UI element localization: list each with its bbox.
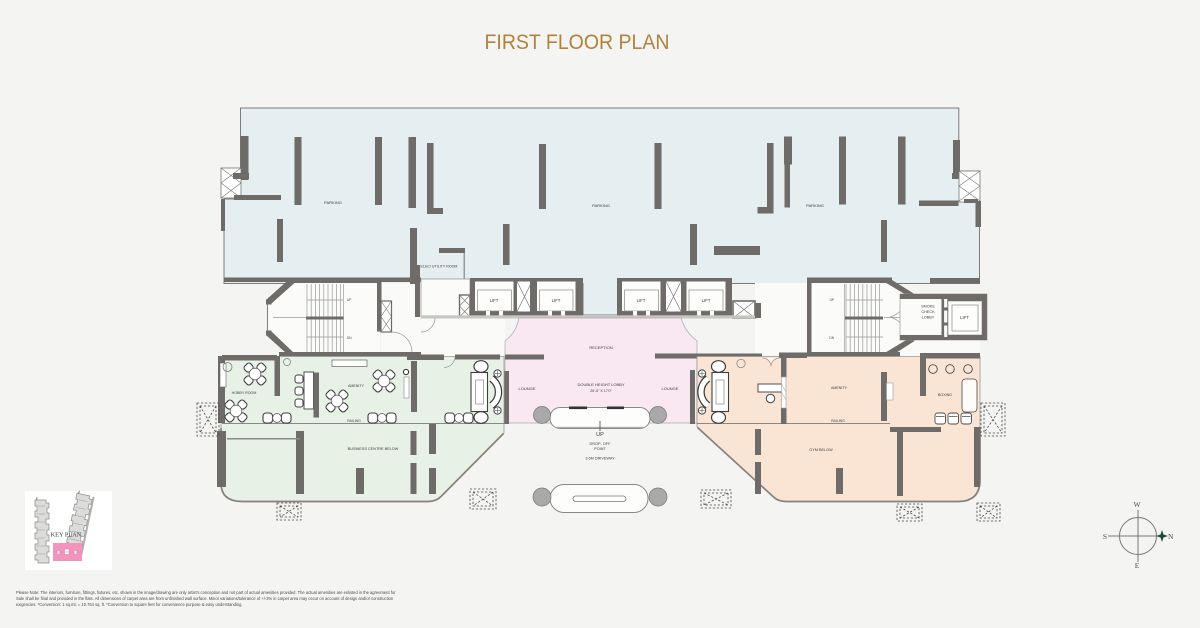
svg-text:PARKING: PARKING: [806, 203, 824, 208]
svg-text:BUSINESS CENTRE BELOW: BUSINESS CENTRE BELOW: [348, 447, 399, 451]
svg-text:DROP- OFF: DROP- OFF: [590, 442, 612, 446]
svg-text:KEY PLAN: KEY PLAN: [51, 532, 82, 539]
svg-text:POINT: POINT: [594, 447, 606, 451]
svg-text:3.6M DRIVEWAY: 3.6M DRIVEWAY: [585, 457, 615, 461]
svg-text:RAILING: RAILING: [831, 419, 845, 423]
svg-text:UP: UP: [347, 298, 351, 302]
svg-text:DOUBLE HEIGHT LOBBY: DOUBLE HEIGHT LOBBY: [577, 382, 624, 387]
svg-text:Please Note: The interiors, fu: Please Note: The interiors, furniture, f…: [16, 590, 396, 595]
svg-text:exigencies. *Conversion: 1 sq.: exigencies. *Conversion: 1 sq.mt. = 10.7…: [16, 602, 243, 607]
svg-text:ELEC/ UTILITY ROOM: ELEC/ UTILITY ROOM: [421, 265, 458, 269]
svg-text:GYM BELOW: GYM BELOW: [809, 448, 833, 452]
svg-text:DN: DN: [829, 336, 834, 340]
svg-text:N: N: [1168, 532, 1174, 541]
svg-text:E: E: [1135, 561, 1140, 570]
svg-text:BOXING: BOXING: [938, 393, 952, 397]
svg-text:AMENITY: AMENITY: [831, 386, 848, 390]
svg-text:DN: DN: [347, 336, 352, 340]
svg-text:LOUNGE: LOUNGE: [662, 386, 679, 391]
svg-text:LIFT: LIFT: [960, 315, 969, 320]
svg-text:LIFT: LIFT: [637, 298, 646, 303]
svg-text:Sale shall be final and provid: Sale shall be final and provided in the …: [16, 596, 394, 601]
svg-text:LOBBY: LOBBY: [922, 316, 935, 320]
svg-text:RECEPTION: RECEPTION: [589, 345, 612, 350]
svg-text:UP: UP: [596, 432, 604, 438]
svg-text:LIFT: LIFT: [702, 298, 711, 303]
svg-text:PARKING: PARKING: [324, 200, 342, 205]
svg-text:LIFT: LIFT: [490, 298, 499, 303]
svg-text:W: W: [1133, 500, 1141, 509]
svg-text:LOUNGE: LOUNGE: [519, 386, 536, 391]
svg-text:LIFT: LIFT: [552, 298, 561, 303]
svg-text:AMENITY: AMENITY: [348, 384, 365, 388]
svg-text:RAILING: RAILING: [347, 419, 361, 423]
svg-text:26'-6" X 17'0": 26'-6" X 17'0": [590, 389, 612, 393]
svg-text:S: S: [1103, 532, 1107, 541]
svg-text:UP: UP: [830, 298, 834, 302]
svg-text:SMOKE: SMOKE: [921, 305, 935, 309]
svg-text:CHECK: CHECK: [921, 310, 935, 314]
svg-text:PARKING: PARKING: [592, 203, 610, 208]
svg-text:HOBBY ROOM: HOBBY ROOM: [232, 391, 257, 395]
svg-text:FIRST FLOOR PLAN: FIRST FLOOR PLAN: [485, 29, 670, 54]
